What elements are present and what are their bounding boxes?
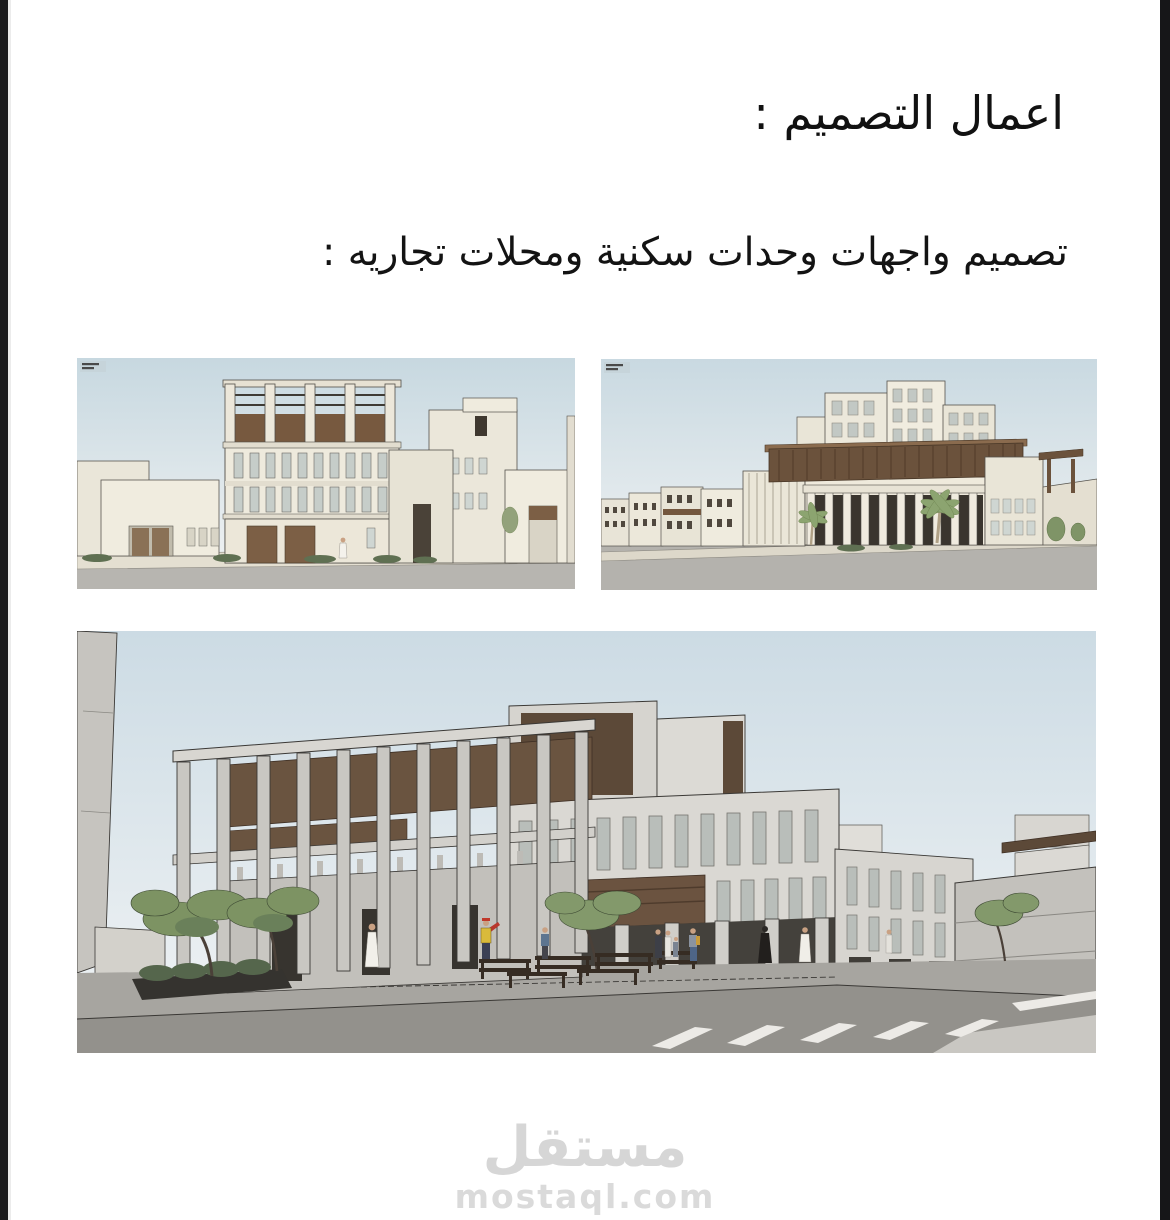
render-residential-elevation bbox=[77, 358, 575, 589]
render-street-perspective-svg bbox=[77, 631, 1096, 1053]
left-edge-divider bbox=[8, 0, 11, 1220]
scene-label-marks bbox=[604, 362, 630, 373]
mostaql-logo-text: مستقل bbox=[0, 1120, 1170, 1176]
render-commercial-complex-svg bbox=[601, 359, 1097, 590]
right-edge-strip bbox=[1160, 0, 1170, 1220]
left-edge-strip bbox=[0, 0, 8, 1220]
render-residential-elevation-svg bbox=[77, 358, 575, 589]
page-title: اعمال التصميم : bbox=[753, 84, 1064, 144]
mostaql-watermark: مستقل mostaql.com bbox=[0, 1120, 1170, 1216]
render-street-perspective-large bbox=[77, 631, 1096, 1053]
section-subtitle: تصميم واجهات وحدات سكنية ومحلات تجاريه : bbox=[322, 228, 1068, 279]
render-commercial-complex-perspective bbox=[601, 359, 1097, 590]
scene-label-marks bbox=[80, 361, 106, 372]
mostaql-domain-text: mostaql.com bbox=[0, 1177, 1170, 1216]
